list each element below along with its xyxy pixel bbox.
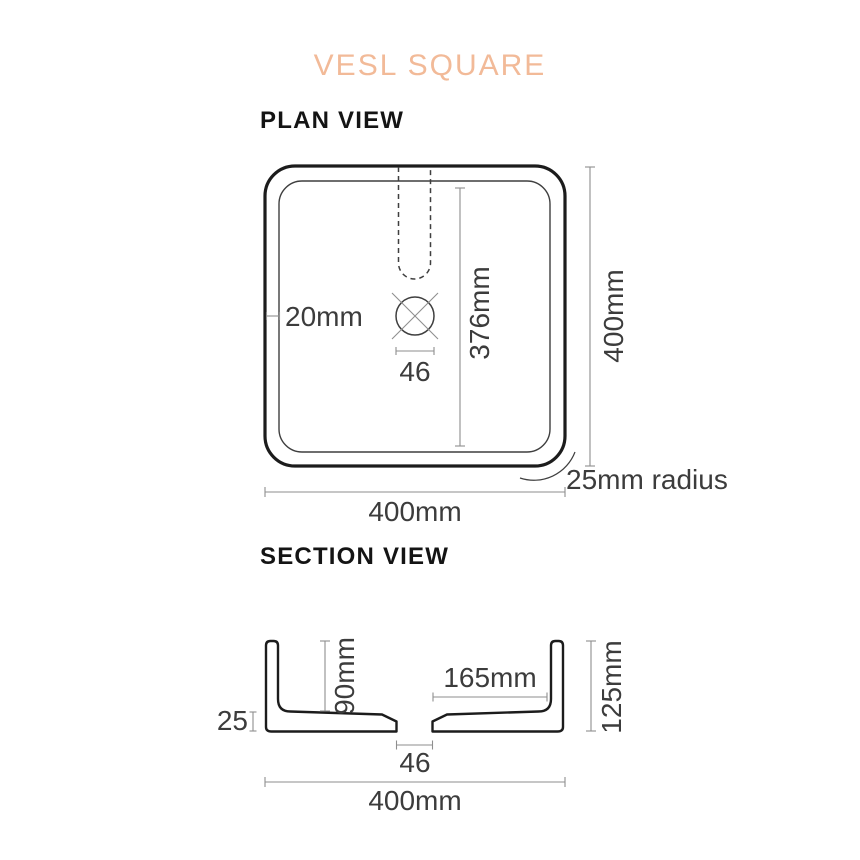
plan-view-drawing: 20mm 376mm 46 400mm (265, 166, 728, 527)
spec-sheet: VESL SQUARE PLAN VIEW SECTION VIEW 20m (0, 0, 860, 860)
section-base-width-dim: 165mm (433, 662, 547, 702)
section-height-dim: 125mm (586, 640, 627, 733)
plan-height-label: 400mm (598, 269, 629, 362)
section-base-thickness-label: 25 (217, 705, 248, 736)
section-view-drawing: 25 90mm 165mm 125mm (217, 637, 627, 816)
plan-width-dim: 400mm (265, 487, 565, 527)
section-inner-depth-label: 90mm (329, 637, 360, 715)
plan-drain-width-label: 46 (399, 356, 430, 387)
plan-height-dim: 400mm (585, 167, 629, 466)
plan-inner-length-label: 376mm (464, 266, 495, 359)
section-base-width-label: 165mm (443, 662, 536, 693)
section-width-label: 400mm (368, 785, 461, 816)
plan-width-label: 400mm (368, 496, 461, 527)
section-base-thickness-dim: 25 (217, 705, 257, 736)
plan-corner-radius-label: 25mm radius (566, 464, 728, 495)
section-drain-width-label: 46 (399, 747, 430, 778)
technical-drawing: 20mm 376mm 46 400mm (0, 0, 860, 860)
section-height-label: 125mm (596, 640, 627, 733)
plan-wall-thickness-label: 20mm (285, 301, 363, 332)
section-inner-depth-dim: 90mm (320, 637, 360, 715)
section-drain-width-dim: 46 (397, 741, 433, 779)
section-width-dim: 400mm (265, 777, 565, 816)
